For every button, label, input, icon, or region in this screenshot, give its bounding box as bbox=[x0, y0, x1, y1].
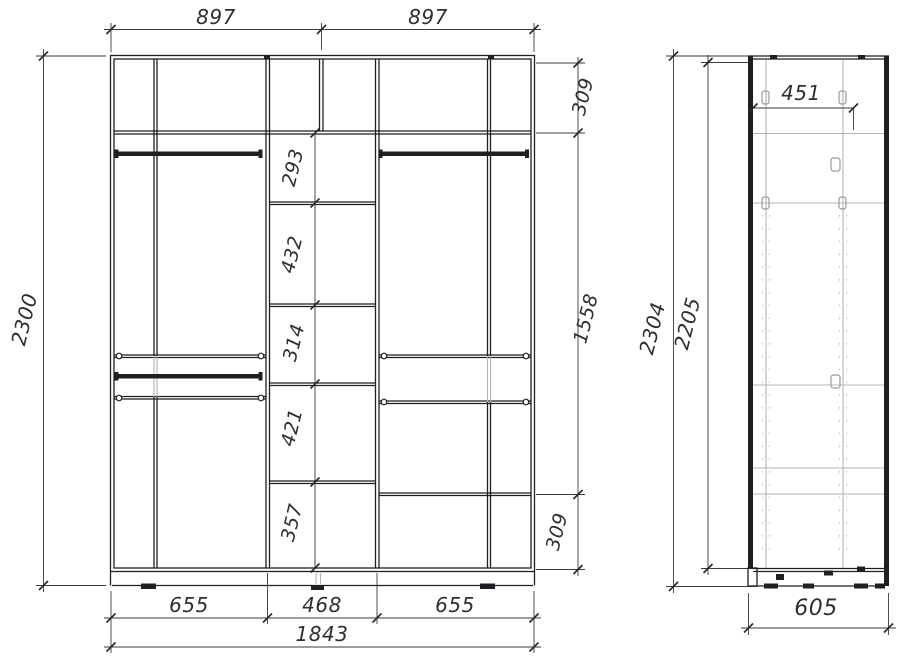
side-base-hardware bbox=[824, 571, 833, 576]
dim-overall-width: 1843 bbox=[296, 622, 349, 646]
carcass-line-group bbox=[111, 56, 890, 586]
dim-section-right: 655 bbox=[435, 593, 475, 617]
side-view-dimension-labels: 2304 2205 451 605 bbox=[634, 81, 838, 621]
side-foot bbox=[875, 584, 885, 589]
secondary-line-group bbox=[154, 60, 884, 584]
front-carcass-outline bbox=[111, 56, 535, 572]
side-foot bbox=[764, 584, 778, 589]
rod-bracket bbox=[379, 150, 383, 159]
dim-overall-height: 2300 bbox=[6, 291, 42, 348]
shelf-pin bbox=[258, 353, 264, 359]
hanging-rod-left-top bbox=[117, 152, 260, 157]
hanging-rod-left-lower bbox=[117, 374, 260, 379]
side-base-hardware bbox=[776, 574, 784, 580]
front-foot bbox=[311, 586, 324, 591]
shelf-pin bbox=[116, 395, 122, 401]
shelf-pin bbox=[523, 399, 529, 405]
rod-bracket bbox=[259, 372, 263, 381]
shelf-pin bbox=[116, 353, 122, 359]
drawing-linework bbox=[36, 23, 896, 653]
dim-right-top: 309 bbox=[568, 76, 598, 118]
side-top-fixing-mark bbox=[770, 55, 777, 60]
top-fixing-mark bbox=[488, 56, 494, 60]
side-foot bbox=[854, 584, 868, 589]
front-carcass-inner-outline bbox=[114, 59, 531, 568]
side-foot bbox=[803, 584, 814, 589]
rod-bracket bbox=[115, 150, 119, 159]
cam-lock-icon bbox=[831, 375, 840, 388]
dim-side-interior-height: 2205 bbox=[669, 295, 705, 352]
dim-side-top-shelf-depth: 451 bbox=[781, 81, 821, 105]
dim-side-overall-height: 2304 bbox=[634, 300, 670, 357]
dim-right-bottom: 309 bbox=[542, 511, 572, 553]
side-front-edge-panel bbox=[748, 56, 753, 568]
dim-center-cell-1: 293 bbox=[278, 147, 308, 189]
dimension-line-group bbox=[36, 23, 896, 653]
hanging-rod-right-top bbox=[381, 152, 526, 157]
front-foot bbox=[480, 584, 495, 590]
top-fixing-mark bbox=[264, 56, 270, 60]
dim-center-cell-3: 314 bbox=[279, 322, 309, 364]
dim-center-cell-2: 432 bbox=[277, 234, 307, 276]
front-foot bbox=[141, 584, 156, 590]
wardrobe-technical-drawing: 897 897 2300 309 1558 309 293 432 314 42… bbox=[0, 0, 917, 659]
rod-bracket bbox=[525, 150, 529, 159]
shelf-pin bbox=[258, 395, 264, 401]
side-top-fixing-mark bbox=[858, 55, 865, 60]
cam-lock-icon bbox=[831, 158, 840, 171]
side-back-edge-panel bbox=[884, 56, 889, 586]
shelf-pin bbox=[523, 353, 529, 359]
drawing-svg: 897 897 2300 309 1558 309 293 432 314 42… bbox=[0, 0, 917, 659]
dim-center-cell-5: 357 bbox=[277, 502, 307, 544]
rod-bracket bbox=[259, 150, 263, 159]
side-base-hardware bbox=[857, 567, 865, 572]
dim-center-cell-4: 421 bbox=[277, 407, 307, 449]
dim-section-left: 655 bbox=[169, 593, 209, 617]
dim-side-overall-depth: 605 bbox=[794, 596, 838, 621]
front-view-dimension-labels: 897 897 2300 309 1558 309 293 432 314 42… bbox=[6, 5, 603, 646]
side-front-leg-outline bbox=[748, 568, 757, 586]
shelf-pin bbox=[381, 353, 387, 359]
shelf-pin bbox=[381, 399, 387, 405]
dim-top-width-right: 897 bbox=[408, 5, 448, 29]
dim-top-width-left: 897 bbox=[196, 5, 236, 29]
dim-section-center: 468 bbox=[302, 593, 342, 617]
dim-right-middle: 1558 bbox=[569, 291, 603, 345]
rod-bracket bbox=[115, 372, 119, 381]
